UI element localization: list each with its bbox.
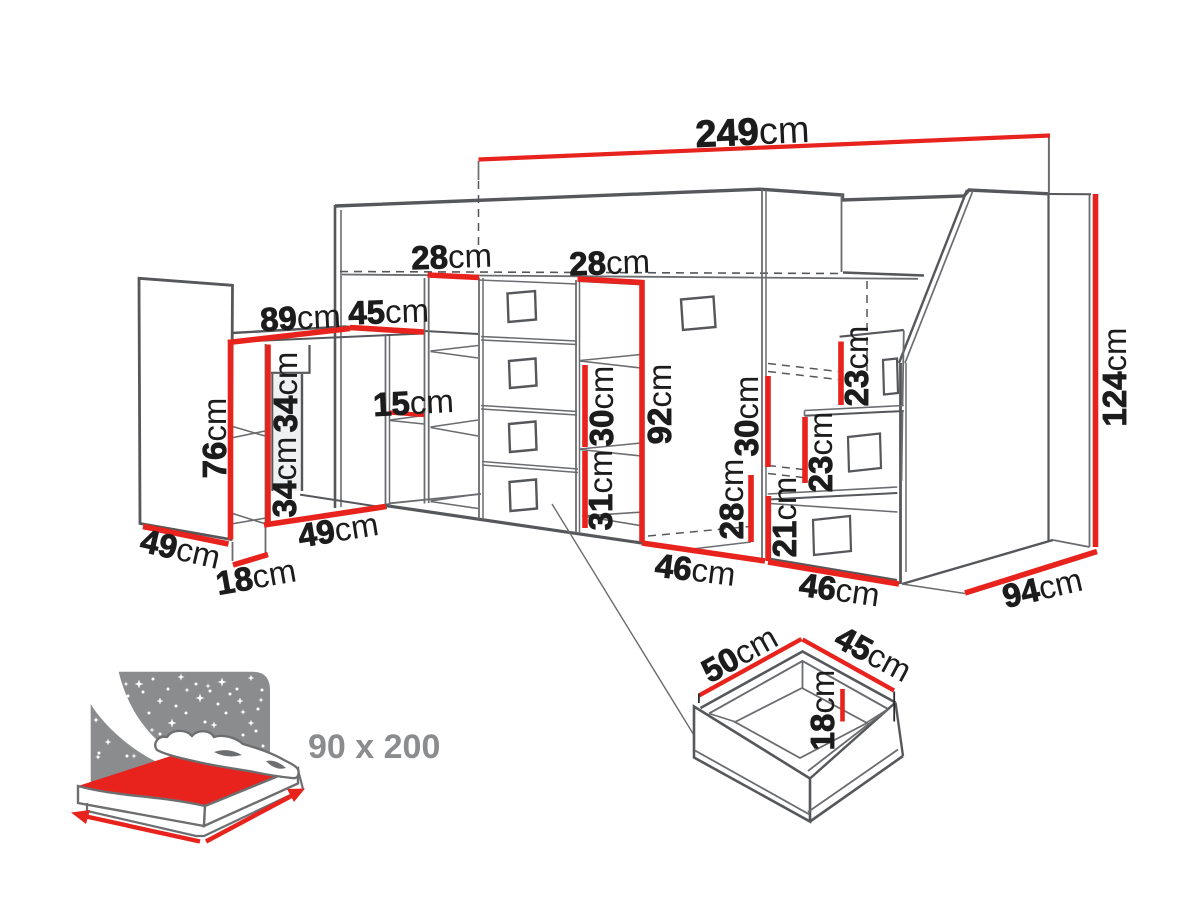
svg-text:49cm: 49cm — [295, 505, 381, 554]
svg-text:23cm: 23cm — [838, 326, 875, 407]
svg-text:15cm: 15cm — [372, 382, 455, 423]
svg-text:28cm: 28cm — [569, 243, 651, 283]
svg-text:249cm: 249cm — [695, 109, 811, 156]
svg-text:28cm: 28cm — [411, 237, 493, 277]
svg-text:90 x 200: 90 x 200 — [308, 728, 440, 766]
svg-text:21cm: 21cm — [766, 477, 803, 558]
svg-text:30cm: 30cm — [583, 366, 620, 447]
svg-text:46cm: 46cm — [797, 566, 882, 614]
svg-text:94cm: 94cm — [999, 561, 1086, 615]
svg-text:28cm: 28cm — [713, 459, 750, 540]
svg-text:34cm: 34cm — [266, 437, 303, 518]
svg-text:89cm: 89cm — [259, 297, 342, 338]
svg-text:18cm: 18cm — [213, 551, 299, 601]
svg-text:31cm: 31cm — [582, 450, 619, 531]
svg-text:45cm: 45cm — [348, 292, 430, 332]
svg-text:76cm: 76cm — [196, 398, 233, 479]
svg-text:124cm: 124cm — [1096, 327, 1133, 426]
svg-text:30cm: 30cm — [728, 376, 765, 457]
svg-text:34cm: 34cm — [267, 352, 304, 433]
svg-text:18cm: 18cm — [804, 670, 841, 751]
svg-text:92cm: 92cm — [641, 364, 678, 445]
svg-text:49cm: 49cm — [137, 522, 224, 576]
svg-text:23cm: 23cm — [802, 412, 839, 493]
